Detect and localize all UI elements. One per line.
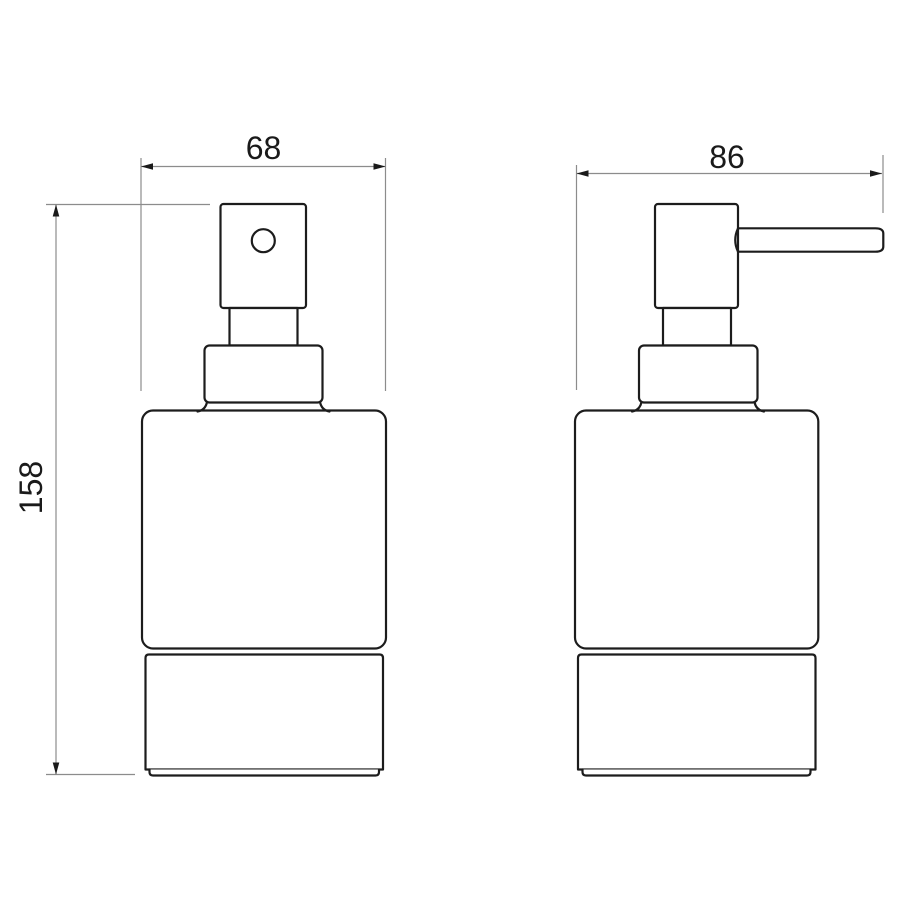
side-depth-label: 86 xyxy=(709,139,745,175)
side-spout xyxy=(738,228,883,251)
arrow-right-icon xyxy=(374,163,386,170)
front-nozzle-hole xyxy=(252,229,275,252)
front-pump-stem xyxy=(230,308,298,346)
front-width-label: 68 xyxy=(246,130,282,166)
arrow-left-icon xyxy=(577,170,589,177)
front-collar xyxy=(205,346,323,403)
front-view xyxy=(142,204,386,776)
side-pump-stem xyxy=(663,308,731,346)
front-base-lip xyxy=(150,770,380,776)
side-collar xyxy=(639,346,758,403)
height-label: 158 xyxy=(13,461,49,514)
front-pump-head xyxy=(221,204,307,308)
side-base xyxy=(578,655,816,770)
technical-drawing-canvas: 68 86 158 xyxy=(0,0,900,900)
side-base-lip xyxy=(583,770,811,776)
arrow-left-icon xyxy=(141,163,153,170)
arrow-right-icon xyxy=(870,170,882,177)
front-body xyxy=(142,411,386,649)
front-base xyxy=(146,655,384,770)
side-pump-head xyxy=(655,204,738,308)
arrow-down-icon xyxy=(53,763,60,775)
arrow-up-icon xyxy=(53,205,60,217)
technical-drawing-page: 68 86 158 xyxy=(0,0,900,900)
side-body xyxy=(575,411,818,649)
side-view xyxy=(575,204,883,776)
